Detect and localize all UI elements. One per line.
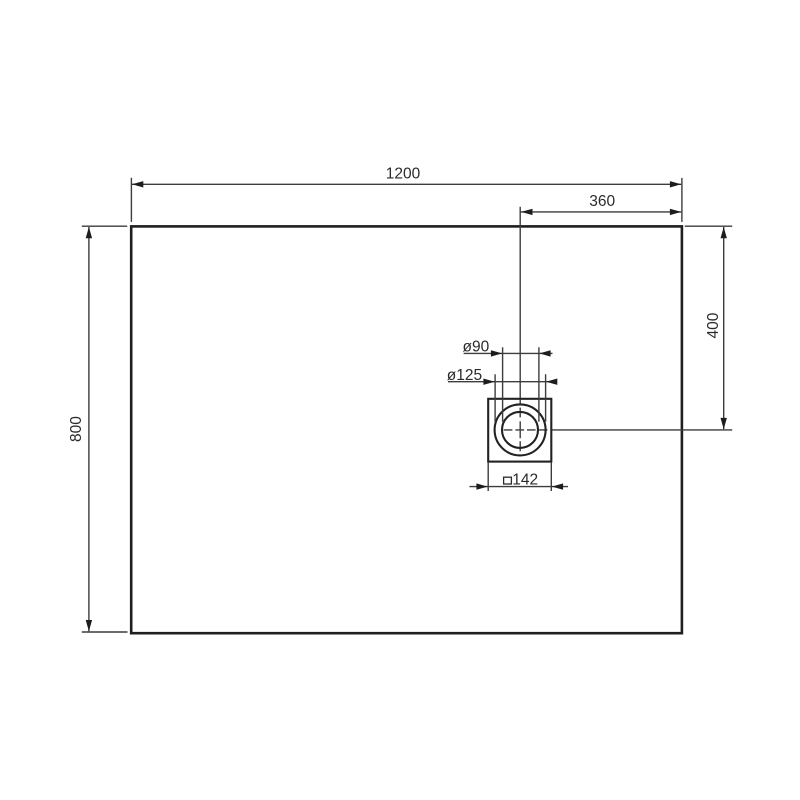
svg-text:ø125: ø125 bbox=[447, 367, 482, 384]
svg-text:800: 800 bbox=[68, 416, 85, 442]
svg-text:1200: 1200 bbox=[386, 166, 421, 183]
svg-text:360: 360 bbox=[589, 193, 615, 210]
svg-text:ø90: ø90 bbox=[463, 338, 490, 355]
svg-text:142: 142 bbox=[512, 471, 538, 488]
svg-text:400: 400 bbox=[705, 312, 722, 338]
